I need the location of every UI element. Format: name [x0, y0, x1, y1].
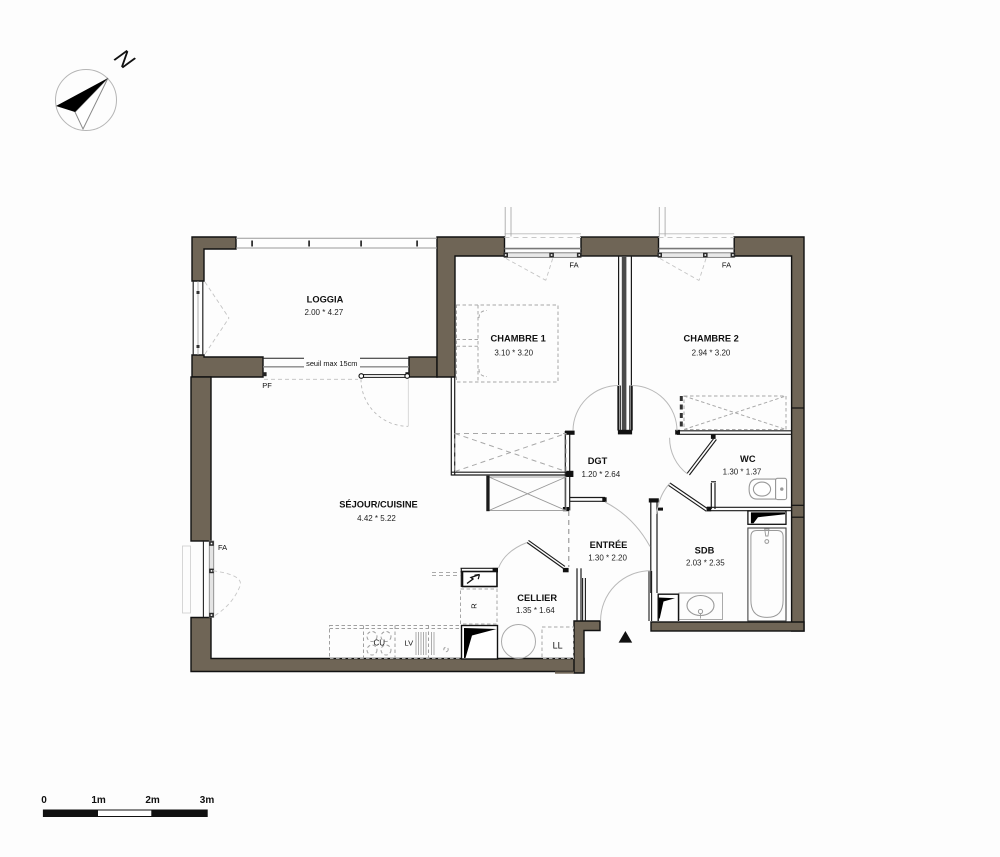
svg-text:LL: LL: [553, 641, 563, 651]
svg-text:FA: FA: [722, 261, 731, 270]
svg-text:ENTRÉE: ENTRÉE: [590, 540, 628, 550]
svg-text:1.35 * 1.64: 1.35 * 1.64: [516, 606, 555, 615]
svg-text:LOGGIA: LOGGIA: [307, 294, 344, 304]
svg-text:1.20 * 2.64: 1.20 * 2.64: [581, 470, 620, 479]
svg-text:1m: 1m: [91, 795, 106, 806]
svg-text:LV: LV: [404, 638, 414, 647]
svg-text:2.94 * 3.20: 2.94 * 3.20: [692, 348, 731, 357]
svg-text:seuil max 15cm: seuil max 15cm: [306, 359, 357, 368]
svg-text:WC: WC: [740, 454, 756, 464]
svg-text:1.30 * 1.37: 1.30 * 1.37: [723, 467, 762, 476]
svg-text:3m: 3m: [200, 795, 215, 806]
svg-text:1.30 * 2.20: 1.30 * 2.20: [588, 553, 627, 562]
svg-text:R: R: [470, 603, 479, 609]
svg-text:0: 0: [41, 795, 47, 806]
svg-text:3.10 * 3.20: 3.10 * 3.20: [494, 348, 533, 357]
svg-text:SÉJOUR/CUISINE: SÉJOUR/CUISINE: [339, 500, 418, 510]
svg-text:CELLIER: CELLIER: [517, 593, 557, 603]
svg-text:DGT: DGT: [588, 456, 608, 466]
svg-text:SDB: SDB: [695, 545, 715, 555]
svg-text:PF: PF: [262, 381, 272, 390]
svg-text:FA: FA: [218, 543, 227, 552]
svg-text:CHAMBRE 2: CHAMBRE 2: [684, 334, 739, 344]
svg-text:CHAMBRE 1: CHAMBRE 1: [491, 334, 546, 344]
svg-text:CU: CU: [374, 638, 386, 647]
svg-text:FA: FA: [569, 261, 578, 270]
svg-text:2m: 2m: [145, 795, 160, 806]
svg-text:2.03 * 2.35: 2.03 * 2.35: [686, 559, 725, 568]
svg-text:2.00 * 4.27: 2.00 * 4.27: [304, 308, 343, 317]
svg-text:4.42 * 5.22: 4.42 * 5.22: [357, 514, 396, 523]
